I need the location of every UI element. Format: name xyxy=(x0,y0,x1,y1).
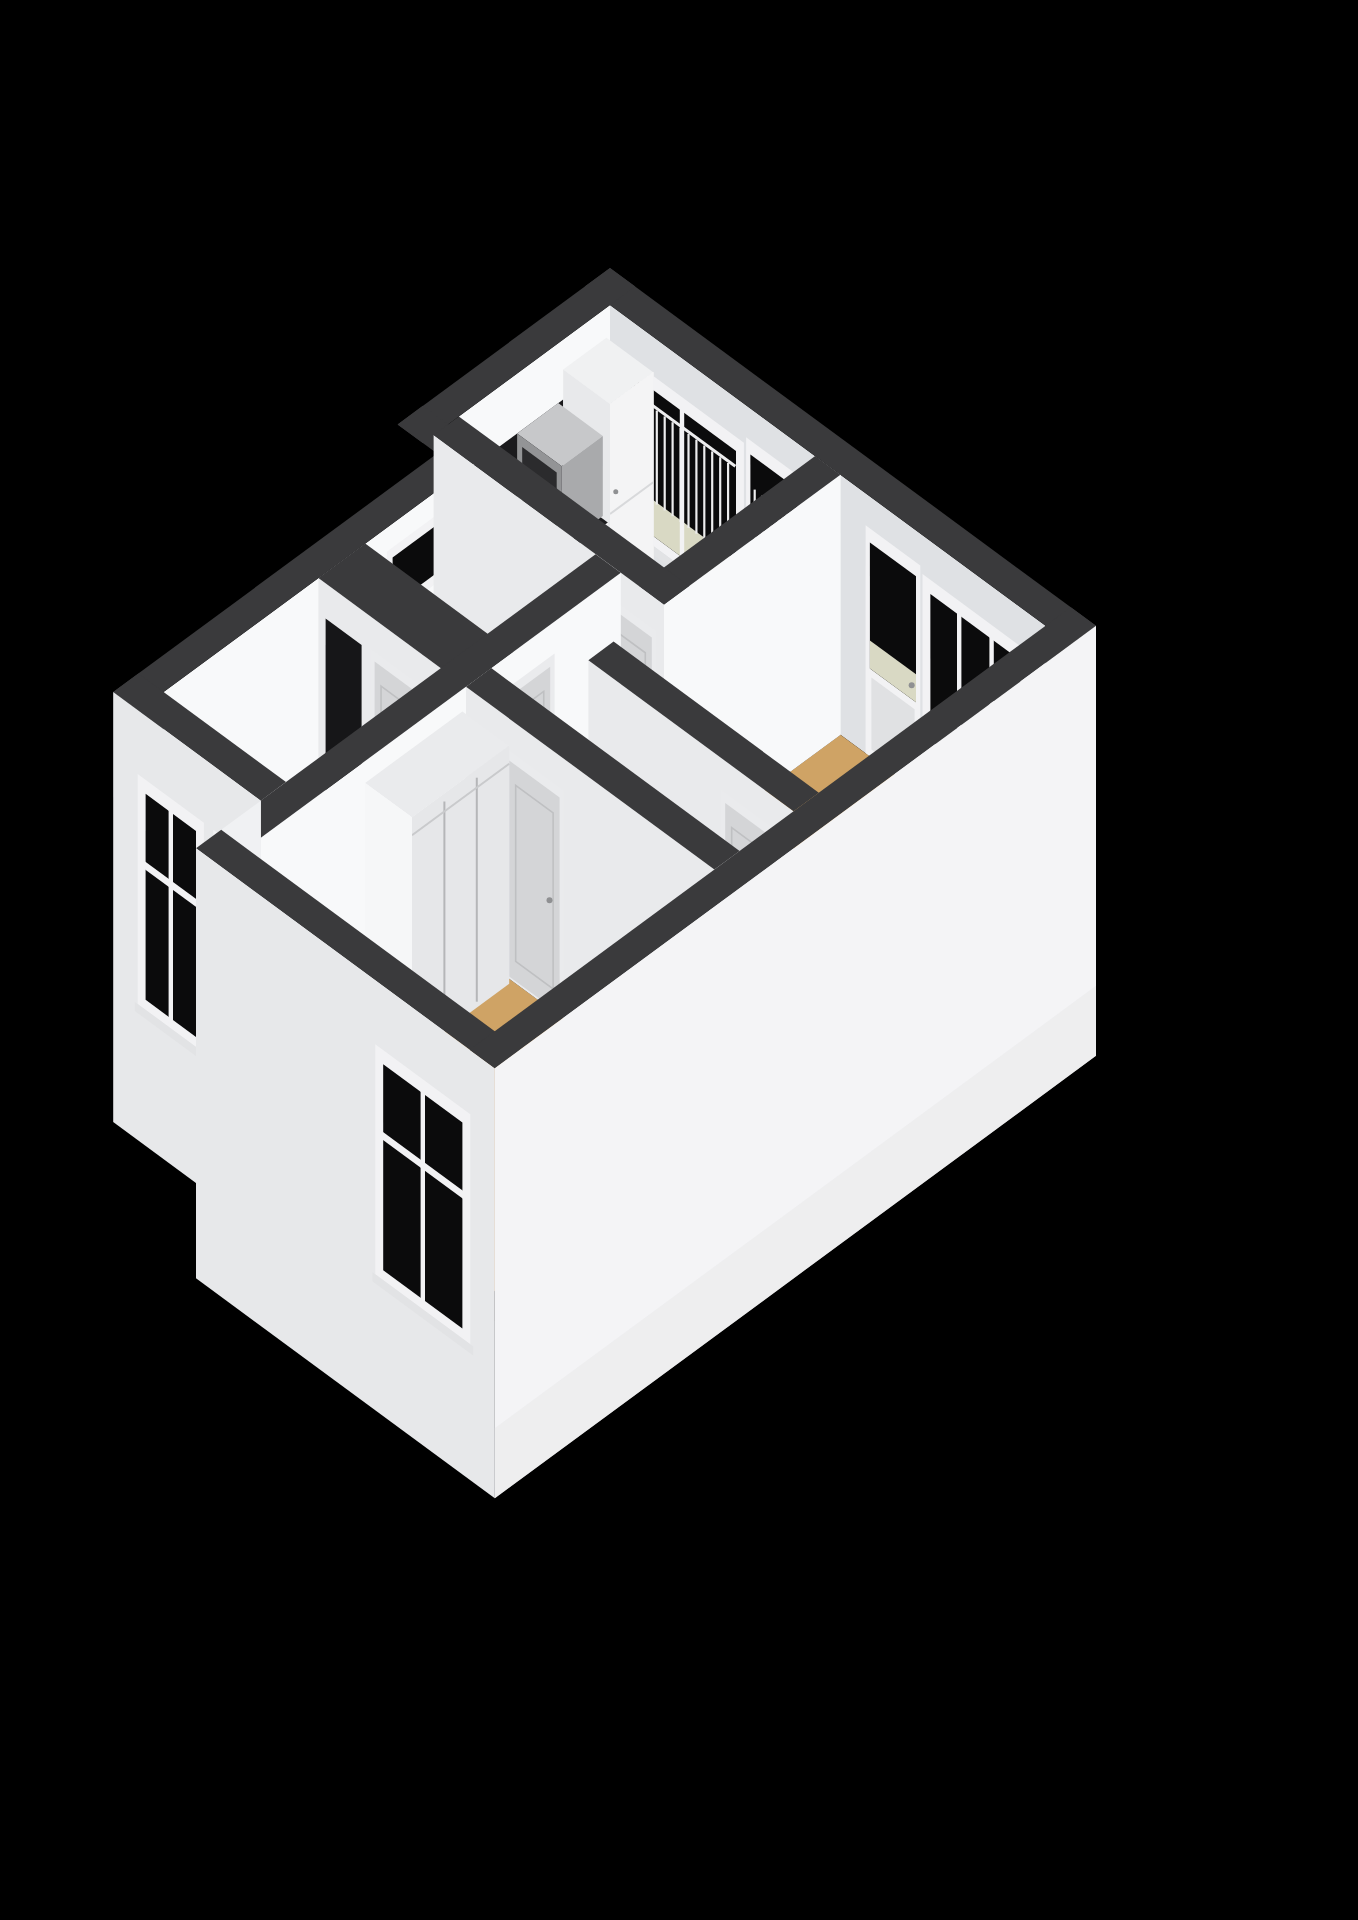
living-room-window-left-mullion xyxy=(169,803,173,1026)
bedroom-bottom-window-mullion xyxy=(421,1084,425,1307)
tall-cabinet-handle xyxy=(613,489,618,494)
floorplan-scene: 3D isometric floor plan of an apartment xyxy=(0,0,1358,1920)
kitchen-window-mullion xyxy=(680,402,684,565)
bedroom-balcony-door-handle xyxy=(909,682,915,688)
bedroom-bottom-door-handle xyxy=(547,897,553,903)
floorplan-3d-view: 3D isometric floor plan of an apartment xyxy=(0,0,1358,1920)
